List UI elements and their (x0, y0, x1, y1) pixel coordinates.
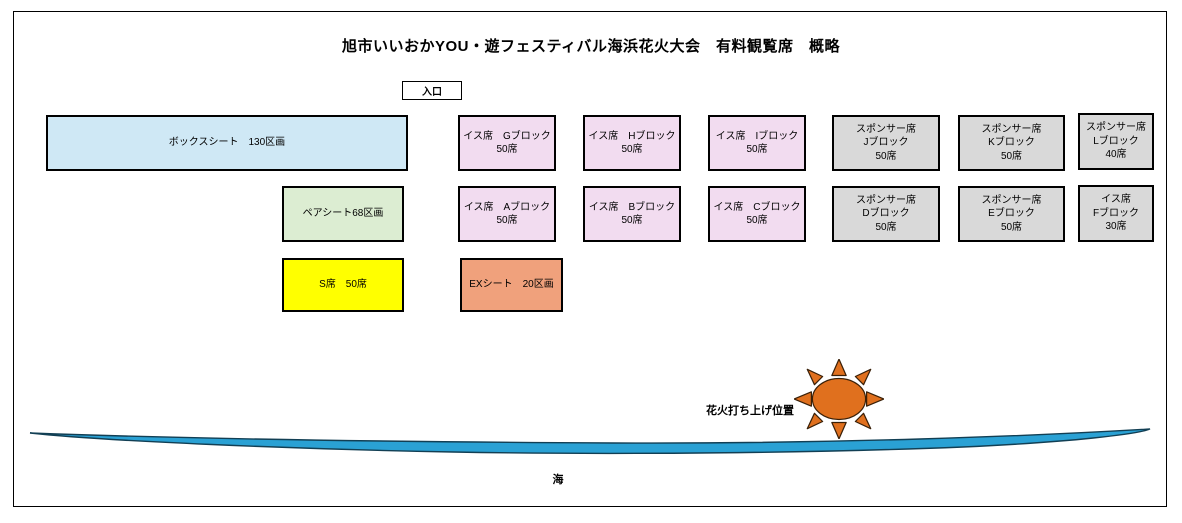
sea-shoreline-shape (13, 418, 1165, 466)
seat-s-seat: S席 50席 (282, 258, 404, 312)
seat-label: スポンサー席 (1086, 121, 1146, 135)
seat-box-sheet: ボックスシート 130区画 (46, 115, 408, 171)
seat-pair-sheet: ペアシート68区画 (282, 186, 404, 242)
seat-chair-block-c: イス席 Cブロック 50席 (708, 186, 806, 242)
seat-block: Kブロック (988, 136, 1035, 150)
seat-label: イス席 Gブロック (463, 130, 550, 144)
seat-sponsor-block-d: スポンサー席 Dブロック 50席 (832, 186, 940, 242)
seat-label: イス席 Hブロック (589, 130, 676, 144)
seat-label: スポンサー席 (982, 123, 1042, 137)
seat-block: Dブロック (862, 207, 909, 221)
seat-chair-block-f: イス席 Fブロック 30席 (1078, 185, 1154, 242)
page-title: 旭市いいおかYOU・遊フェスティバル海浜花火大会 有料観覧席 概略 (0, 35, 1182, 56)
seat-label: イス席 Bブロック (589, 201, 675, 215)
seat-chair-block-h: イス席 Hブロック 50席 (583, 115, 681, 171)
seat-sponsor-block-e: スポンサー席 Eブロック 50席 (958, 186, 1065, 242)
seat-label: ペアシート68区画 (303, 207, 384, 221)
seat-chair-block-i: イス席 Iブロック 50席 (708, 115, 806, 171)
seat-block: Fブロック (1093, 207, 1139, 221)
seat-count: 50席 (875, 221, 896, 235)
sea-label: 海 (528, 471, 588, 487)
seat-label: イス席 (1101, 193, 1131, 207)
entrance-box: 入口 (402, 81, 462, 100)
seat-chair-block-b: イス席 Bブロック 50席 (583, 186, 681, 242)
seat-label: スポンサー席 (982, 194, 1042, 208)
seat-count: 50席 (496, 214, 517, 228)
seat-count: 30席 (1105, 220, 1126, 234)
entrance-label: 入口 (422, 83, 442, 98)
seat-label: イス席 Iブロック (716, 130, 798, 144)
seat-chair-block-g: イス席 Gブロック 50席 (458, 115, 556, 171)
seat-label: S席 50席 (319, 278, 367, 292)
seat-label: イス席 Cブロック (714, 201, 801, 215)
seat-label: ボックスシート 130区画 (169, 136, 285, 150)
seat-count: 40席 (1105, 148, 1126, 162)
seat-ex-sheet: EXシート 20区画 (460, 258, 563, 312)
seat-block: Eブロック (988, 207, 1035, 221)
seat-count: 50席 (621, 143, 642, 157)
seat-sponsor-block-j: スポンサー席 Jブロック 50席 (832, 115, 940, 171)
seat-chair-block-a: イス席 Aブロック 50席 (458, 186, 556, 242)
seat-count: 50席 (746, 214, 767, 228)
seat-label: スポンサー席 (856, 123, 916, 137)
seat-count: 50席 (1001, 150, 1022, 164)
seat-label: イス席 Aブロック (464, 201, 550, 215)
fireworks-launch-label: 花火打ち上げ位置 (676, 402, 794, 418)
seat-sponsor-block-k: スポンサー席 Kブロック 50席 (958, 115, 1065, 171)
seat-count: 50席 (746, 143, 767, 157)
seat-label: EXシート 20区画 (469, 278, 553, 292)
seating-map: 旭市いいおかYOU・遊フェスティバル海浜花火大会 有料観覧席 概略 入口 ボック… (0, 0, 1182, 523)
seat-count: 50席 (1001, 221, 1022, 235)
seat-count: 50席 (621, 214, 642, 228)
seat-block: Jブロック (864, 136, 909, 150)
seat-block: Lブロック (1093, 135, 1139, 149)
seat-label: スポンサー席 (856, 194, 916, 208)
seat-count: 50席 (496, 143, 517, 157)
seat-sponsor-block-l: スポンサー席 Lブロック 40席 (1078, 113, 1154, 170)
seat-count: 50席 (875, 150, 896, 164)
